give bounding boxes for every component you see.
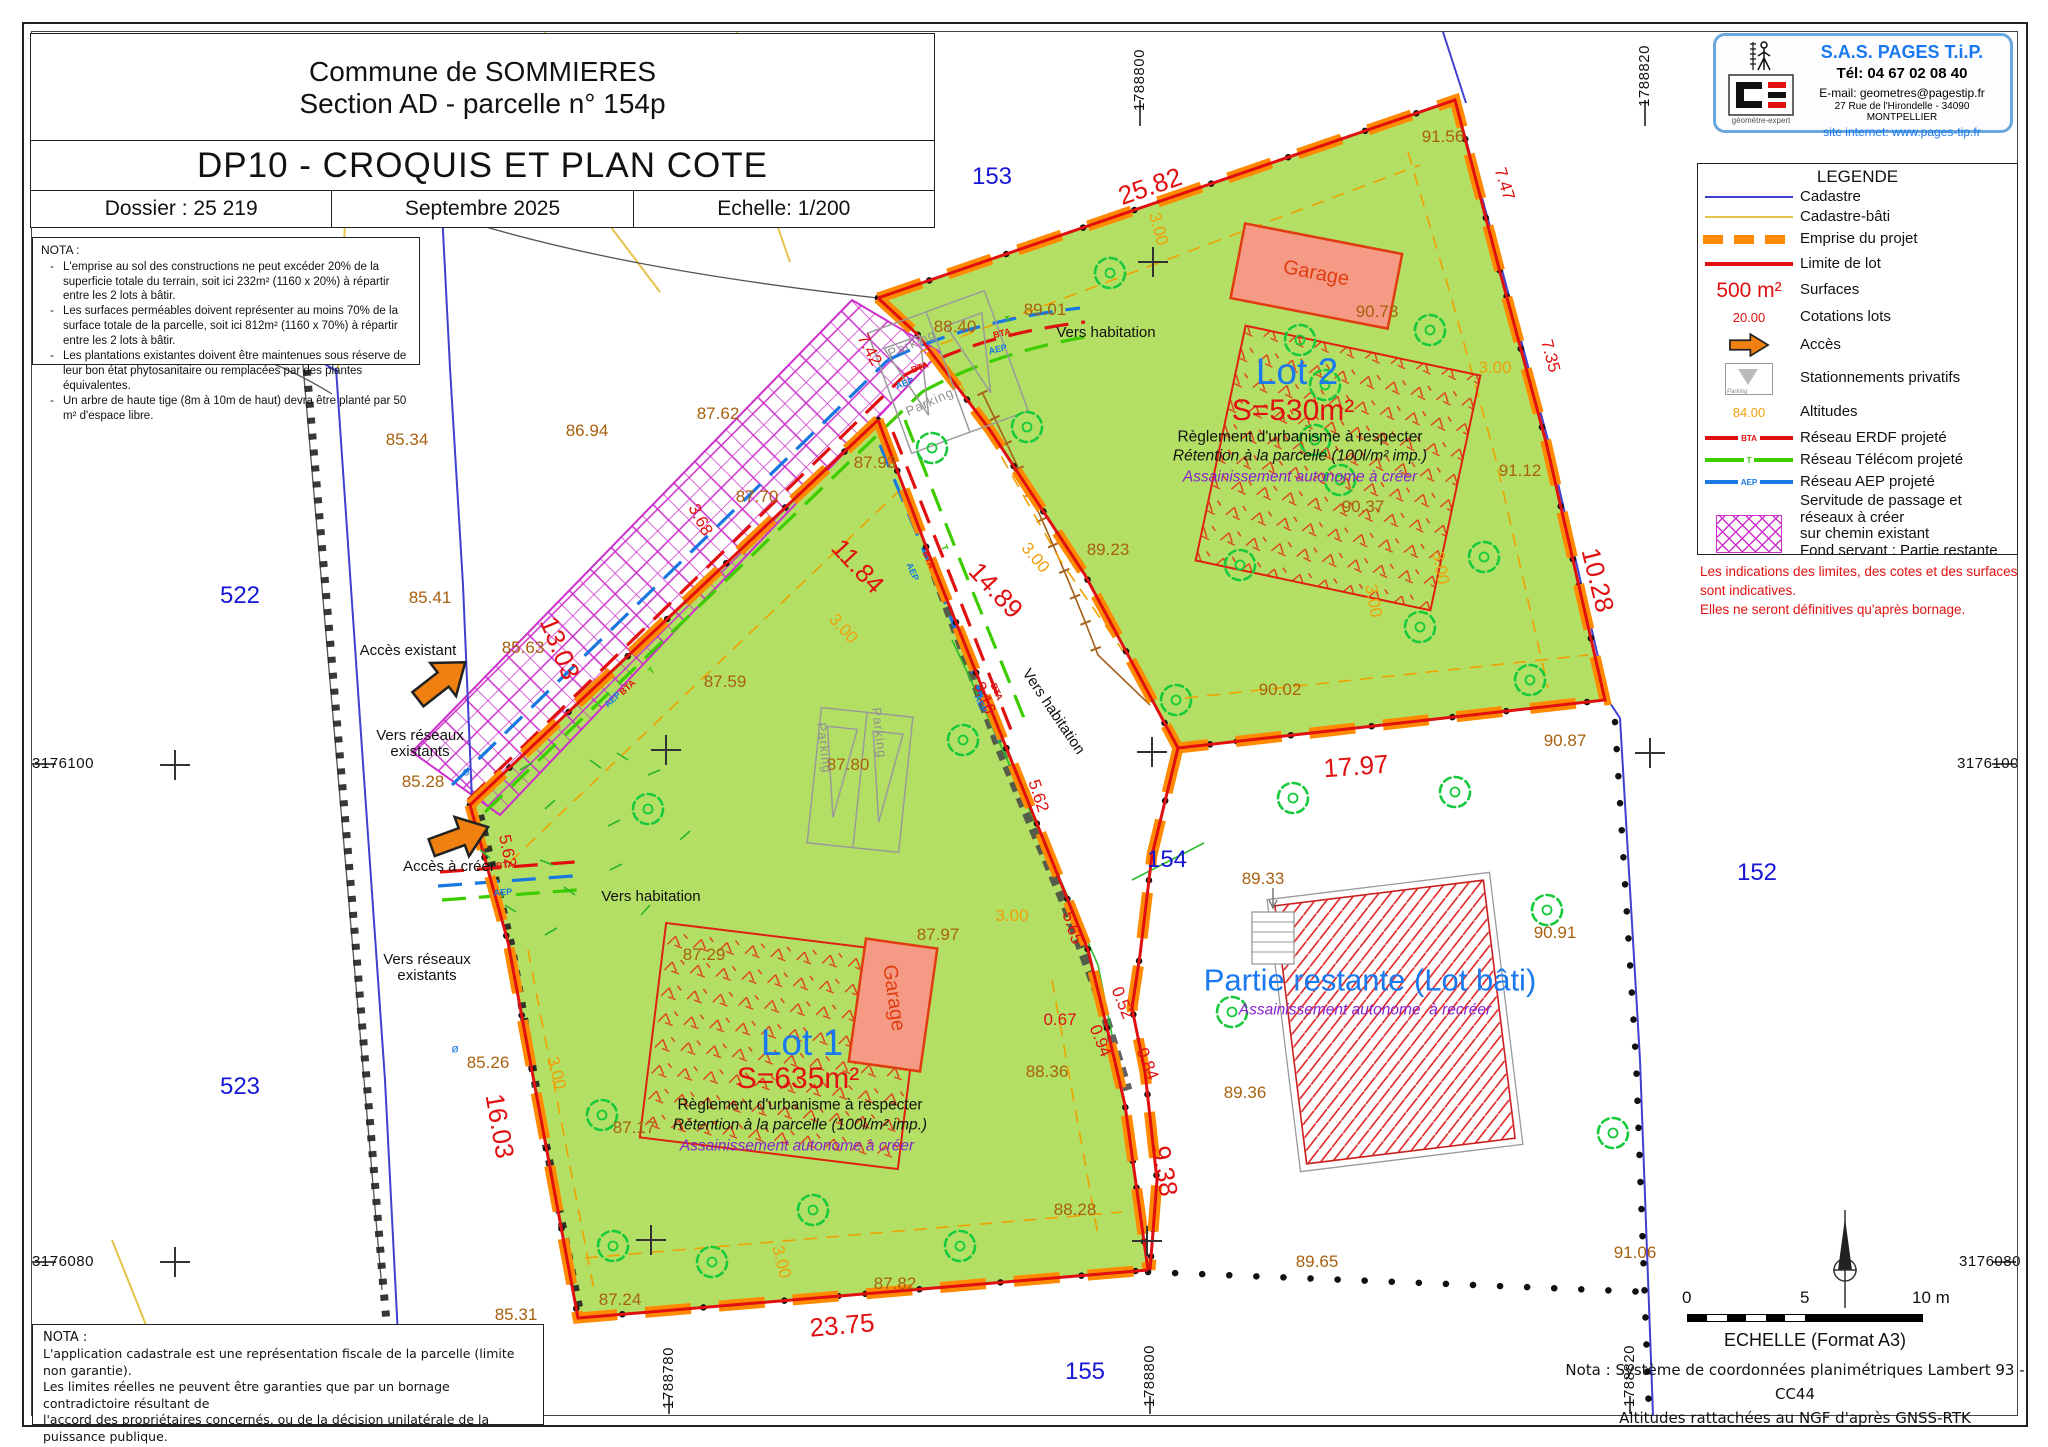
company-tel: Tél: 04 67 02 08 40	[1800, 65, 2004, 82]
nota-top-title: NOTA :	[41, 243, 411, 259]
date-cell: Septembre 2025	[332, 191, 633, 227]
section-title: Section AD - parcelle n° 154p	[31, 88, 934, 120]
legend-title: LEGENDE	[1698, 167, 2017, 187]
nota-item: Les surfaces perméables doivent représen…	[63, 304, 411, 349]
legend-item: TRéseau Télécom projeté	[1698, 449, 2017, 471]
scale-bar-graphic	[1687, 1314, 1923, 1322]
emprise-swatch	[1698, 235, 1800, 244]
nota-item: Les plantations existantes doivent être …	[63, 349, 411, 394]
scale-zero: 0	[1682, 1288, 1691, 1308]
company-logos: géomètre-expert	[1722, 40, 1800, 126]
legend-item-label: Surfaces	[1800, 282, 2017, 299]
legend-item-label: Réseau AEP projeté	[1800, 474, 2017, 491]
cadastre-swatch	[1698, 196, 1800, 198]
doc-title: DP10 - CROQUIS ET PLAN COTE	[30, 140, 935, 192]
coord-note-line1: Nota : Système de coordonnées planimétri…	[1565, 1358, 2025, 1406]
coordinate-note: Nota : Système de coordonnées planimétri…	[1565, 1358, 2025, 1430]
legend-item: Cadastre	[1698, 187, 2017, 207]
title-block-commune: Commune de SOMMIERES Section AD - parcel…	[30, 33, 935, 142]
dossier-cell: Dossier : 25 219	[31, 191, 332, 227]
coord-note-line2: Altitudes rattachées au NGF d'après GNSS…	[1565, 1406, 2025, 1430]
scale-five: 5	[1800, 1288, 1809, 1308]
limite-swatch	[1698, 262, 1800, 266]
legend-item: AEPRéseau AEP projeté	[1698, 471, 2017, 493]
surveyor-icon	[1744, 40, 1778, 74]
legend-item-label: Altitudes	[1800, 404, 2017, 421]
legend-item-label: Servitude de passage et réseaux à créer …	[1800, 493, 2017, 555]
legend-item-label: Emprise du projet	[1800, 231, 2017, 248]
company-box: géomètre-expert S.A.S. PAGES T.i.P. Tél:…	[1713, 33, 2013, 133]
legend-item: 84.00Altitudes	[1698, 397, 2017, 427]
geometre-logo	[1728, 74, 1794, 116]
company-address: 27 Rue de l'Hirondelle - 34090 MONTPELLI…	[1800, 101, 2004, 123]
company-email: E-mail: geometres@pagestip.fr	[1800, 86, 2004, 100]
legend-item-label: Accès	[1800, 337, 2017, 354]
telecom-swatch: T	[1698, 456, 1800, 465]
legend-item: Emprise du projet	[1698, 227, 2017, 252]
company-website: site internet: www.pages-tip.fr	[1800, 125, 2004, 139]
plan-sheet: 1535225231521541551788800178882017887801…	[0, 0, 2048, 1447]
legend-item: Accès	[1698, 330, 2017, 360]
legend-item-label: Cadastre	[1800, 189, 2017, 206]
legend-rows: CadastreCadastre-bâtiEmprise du projetLi…	[1698, 187, 2017, 555]
nota-bottom-title: NOTA :	[43, 1329, 533, 1346]
nota-item: L'emprise au sol des constructions ne pe…	[63, 260, 411, 305]
legend-item-label: Réseau ERDF projeté	[1800, 430, 2017, 447]
legend-item-label: Cadastre-bâti	[1800, 209, 2017, 226]
legend-item: Servitude de passage et réseaux à créer …	[1698, 493, 2017, 555]
arrow-swatch	[1698, 330, 1800, 360]
nota-top-box: NOTA : -L'emprise au sol des constructio…	[32, 237, 420, 365]
cote-swatch: 20.00	[1698, 310, 1800, 325]
title-block-meta: Dossier : 25 219 Septembre 2025 Echelle:…	[30, 190, 935, 228]
commune-title: Commune de SOMMIERES	[31, 56, 934, 88]
echelle-cell: Echelle: 1/200	[634, 191, 934, 227]
scale-caption: ECHELLE (Format A3)	[1650, 1330, 1980, 1351]
bati-swatch	[1698, 216, 1800, 218]
legend-item: Limite de lot	[1698, 252, 2017, 276]
aep-swatch: AEP	[1698, 478, 1800, 487]
company-name: S.A.S. PAGES T.i.P.	[1800, 42, 2004, 63]
legend-item: ParkingStationnements privatifs	[1698, 360, 2017, 397]
servitude-swatch	[1698, 515, 1800, 553]
surface-swatch: 500 m²	[1698, 279, 1800, 303]
parking-swatch: Parking	[1698, 363, 1800, 395]
legend-item-label: Limite de lot	[1800, 256, 2017, 273]
legend-item: 20.00Cotations lots	[1698, 305, 2017, 330]
scale-ten: 10 m	[1912, 1288, 1950, 1308]
legend-item-label: Stationnements privatifs	[1800, 370, 2017, 387]
company-texts: S.A.S. PAGES T.i.P. Tél: 04 67 02 08 40 …	[1800, 40, 2004, 126]
legend-item: 500 m²Surfaces	[1698, 276, 2017, 305]
nota-bottom-body: L'application cadastrale est une représe…	[43, 1346, 533, 1447]
logo-caption: géomètre-expert	[1732, 116, 1791, 125]
legend-disclaimer: Les indications des limites, des cotes e…	[1700, 563, 2030, 620]
legend-item: BTARéseau ERDF projeté	[1698, 427, 2017, 449]
legend-item-label: Réseau Télécom projeté	[1800, 452, 2017, 469]
legend-box: LEGENDE CadastreCadastre-bâtiEmprise du …	[1697, 163, 2018, 555]
alt-swatch: 84.00	[1698, 405, 1800, 420]
erdf-swatch: BTA	[1698, 434, 1800, 443]
nota-bottom-box: NOTA : L'application cadastrale est une …	[32, 1324, 544, 1425]
legend-item-label: Cotations lots	[1800, 309, 2017, 326]
nota-item: Un arbre de haute tige (8m à 10m de haut…	[63, 394, 411, 424]
legend-item: Cadastre-bâti	[1698, 207, 2017, 227]
